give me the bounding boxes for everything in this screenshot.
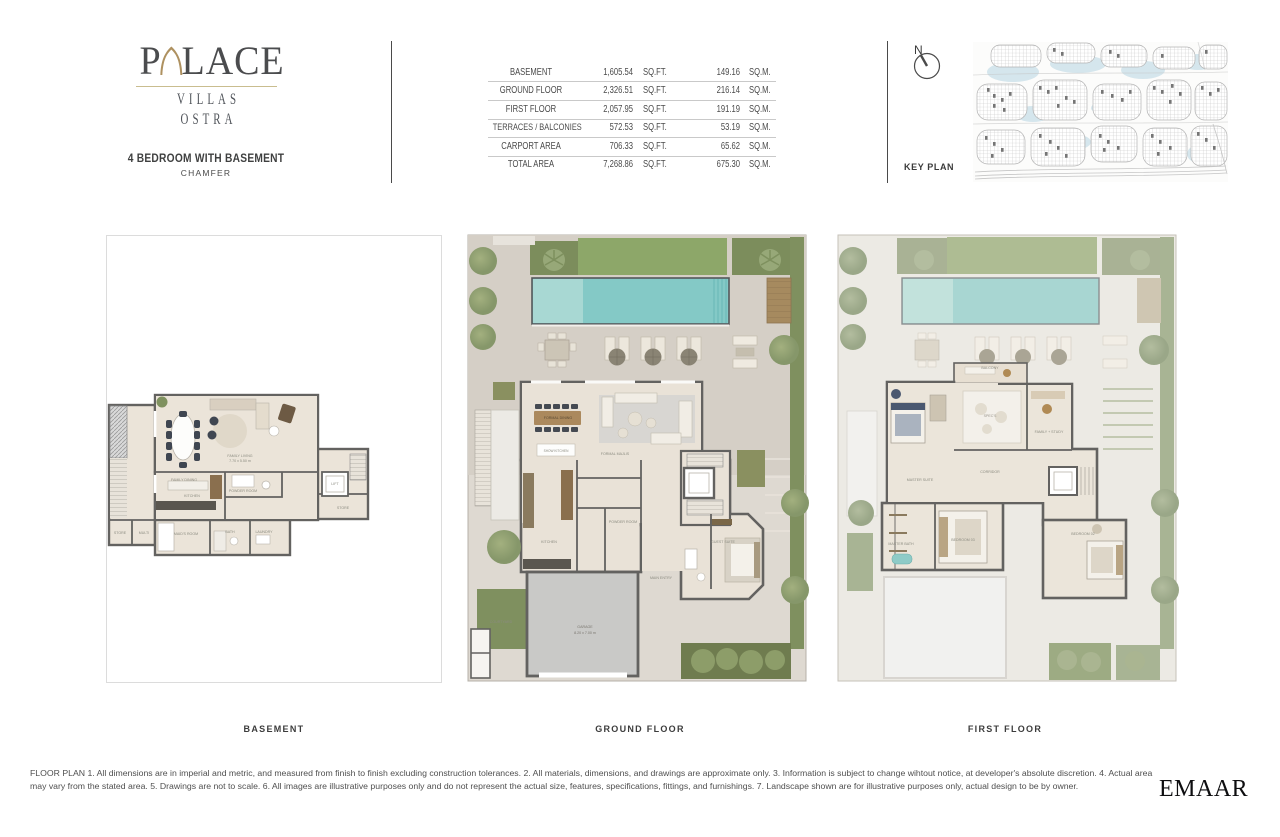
svg-text:BEDROOM 02: BEDROOM 02 <box>1071 532 1095 536</box>
svg-text:GUEST SUITE: GUEST SUITE <box>711 540 735 544</box>
svg-text:POWDER ROOM: POWDER ROOM <box>609 520 637 524</box>
svg-text:BATH: BATH <box>225 530 235 534</box>
svg-text:BALCONY: BALCONY <box>981 366 999 370</box>
svg-text:KITCHEN: KITCHEN <box>184 494 200 498</box>
svg-text:MAID'S ROOM: MAID'S ROOM <box>174 532 198 536</box>
svg-text:STORE: STORE <box>114 531 127 535</box>
svg-text:8.20 x 7.00 m: 8.20 x 7.00 m <box>574 631 596 635</box>
svg-text:FORMAL MAJLIS: FORMAL MAJLIS <box>601 452 630 456</box>
svg-text:SPEC'S: SPEC'S <box>984 414 997 418</box>
svg-text:KITCHEN: KITCHEN <box>541 540 557 544</box>
svg-text:MASTER BATH: MASTER BATH <box>888 542 914 546</box>
svg-text:LAUNDRY: LAUNDRY <box>255 530 273 534</box>
svg-text:STORE: STORE <box>337 506 350 510</box>
svg-text:CORRIDOR: CORRIDOR <box>980 470 1000 474</box>
svg-text:FORMAL DINING: FORMAL DINING <box>544 416 573 420</box>
svg-text:GARAGE: GARAGE <box>577 625 593 629</box>
svg-text:FAMILY LIVING: FAMILY LIVING <box>227 454 252 458</box>
svg-text:FAMILY DINING: FAMILY DINING <box>171 478 197 482</box>
svg-text:MASTER SUITE: MASTER SUITE <box>907 478 934 482</box>
svg-text:MAIN ENTRY: MAIN ENTRY <box>650 576 673 580</box>
svg-text:FAMILY + STUDY: FAMILY + STUDY <box>1035 430 1064 434</box>
svg-text:COURTYARD: COURTYARD <box>490 620 513 624</box>
svg-text:MULTI: MULTI <box>139 531 150 535</box>
svg-text:BEDROOM 03: BEDROOM 03 <box>951 538 975 542</box>
svg-text:LIFT: LIFT <box>331 482 339 486</box>
svg-text:7.70 x 5.50 m: 7.70 x 5.50 m <box>229 459 251 463</box>
svg-text:SHOW KITCHEN: SHOW KITCHEN <box>544 449 569 453</box>
svg-text:POWDER ROOM: POWDER ROOM <box>229 489 257 493</box>
